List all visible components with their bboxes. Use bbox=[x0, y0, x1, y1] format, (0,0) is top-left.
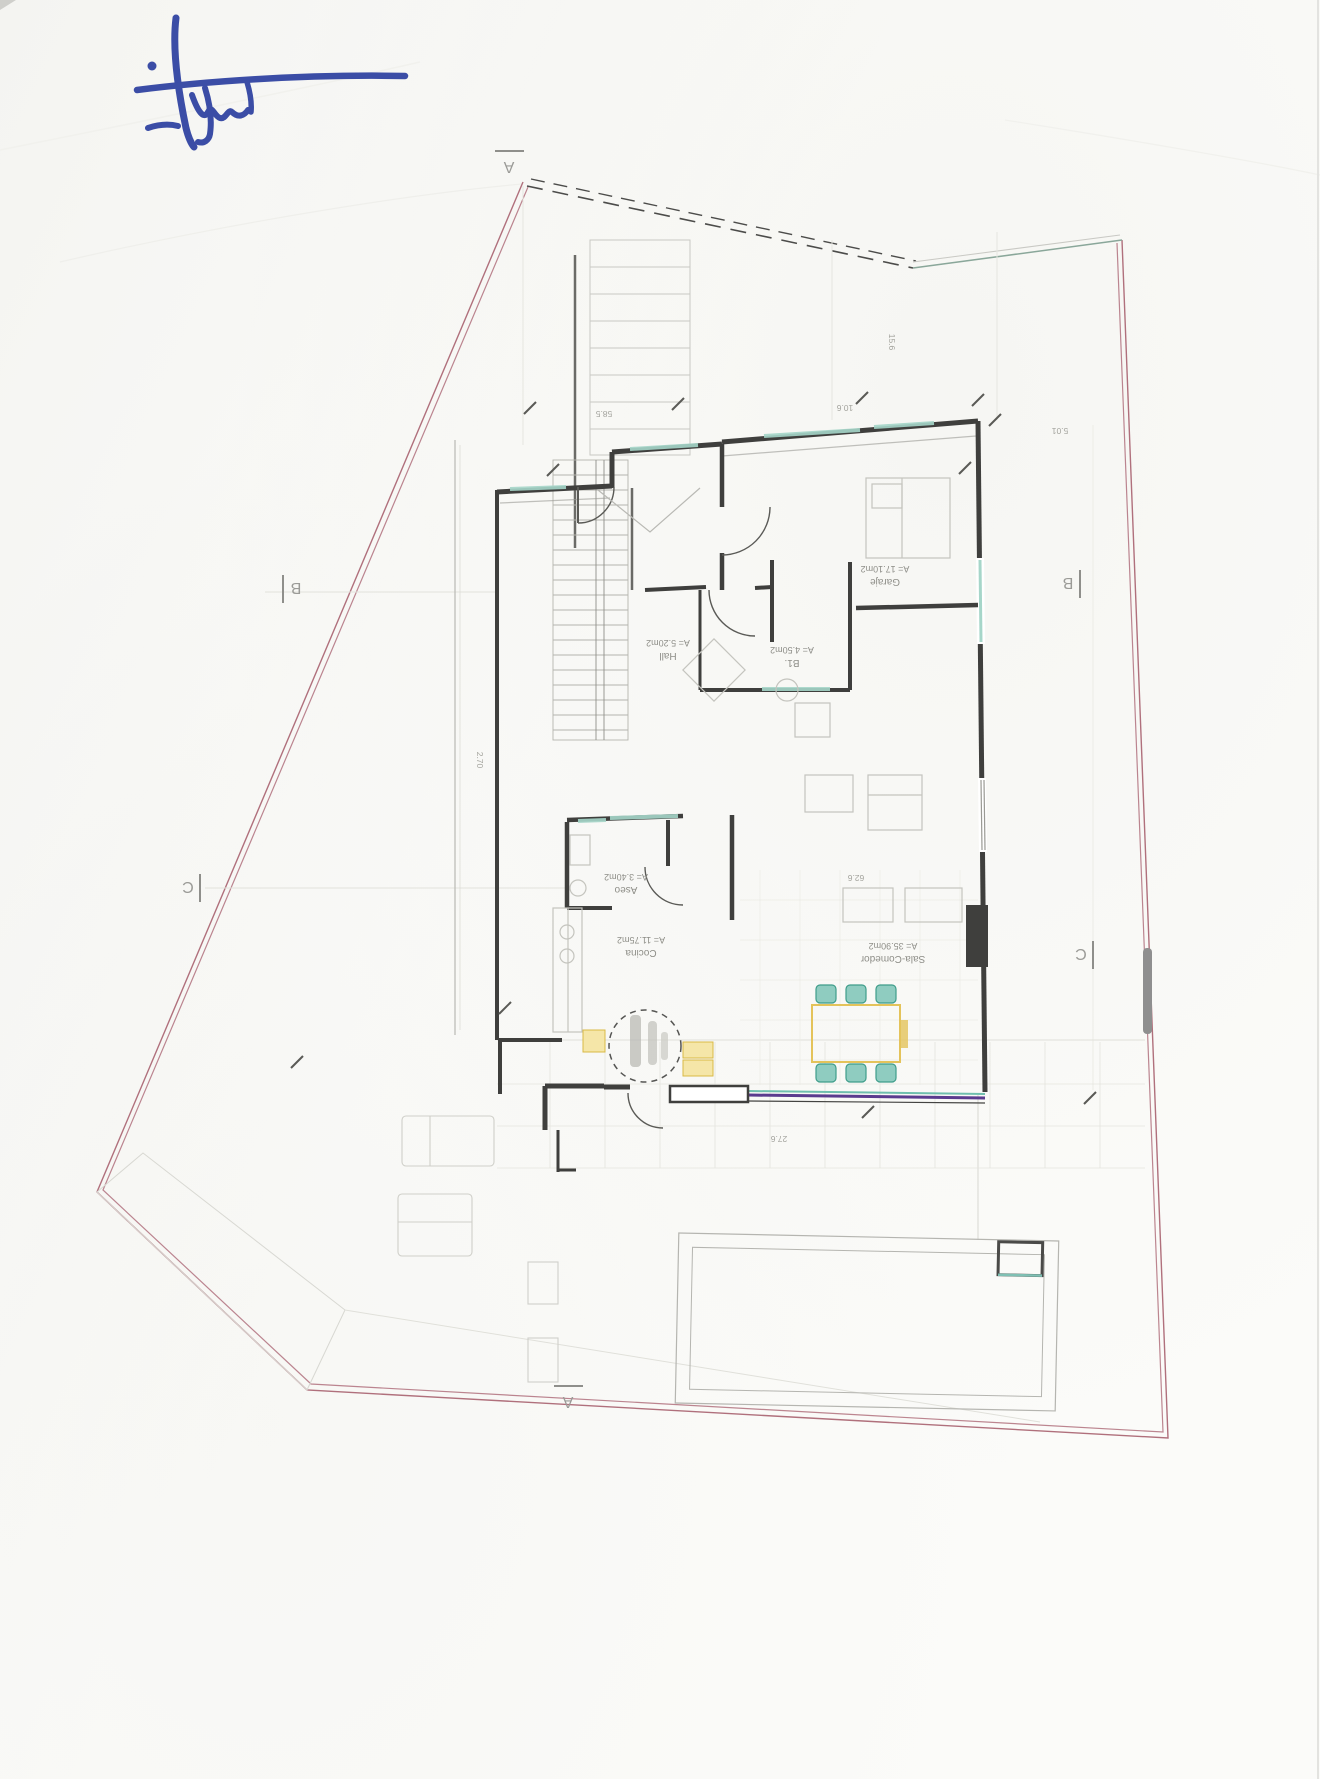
section-marker-c-right: C bbox=[1075, 941, 1093, 969]
svg-text:27.6: 27.6 bbox=[770, 1134, 787, 1144]
floor-plan-drawing: Garaje A= 17.10m2 Hall A= 5.20m2 B1. A= … bbox=[0, 0, 1320, 1779]
svg-text:B1.: B1. bbox=[784, 657, 799, 668]
svg-text:A= 17.10m2: A= 17.10m2 bbox=[861, 564, 910, 574]
section-marker-b-left: B bbox=[283, 575, 301, 603]
section-marker-c-left: C bbox=[182, 874, 200, 902]
svg-text:A= 4.50m2: A= 4.50m2 bbox=[770, 645, 814, 655]
svg-text:2.70: 2.70 bbox=[475, 752, 485, 769]
swimming-pool bbox=[675, 1233, 1058, 1411]
room-label-garaje: Garaje A= 17.10m2 bbox=[861, 564, 910, 587]
svg-text:A= 11.75m2: A= 11.75m2 bbox=[617, 935, 665, 945]
side-yard-fence bbox=[455, 440, 460, 1035]
handwritten-signature bbox=[137, 18, 405, 147]
svg-text:Aseo: Aseo bbox=[614, 884, 637, 895]
svg-text:Hall: Hall bbox=[659, 650, 676, 661]
scrollbar-thumb[interactable] bbox=[1143, 948, 1152, 1034]
svg-text:A= 3.40m2: A= 3.40m2 bbox=[604, 872, 648, 882]
svg-text:62.6: 62.6 bbox=[847, 873, 864, 883]
dining-table-set bbox=[812, 985, 908, 1082]
svg-text:A= 35.90m2: A= 35.90m2 bbox=[869, 941, 918, 951]
svg-text:15.6: 15.6 bbox=[887, 334, 897, 351]
svg-text:C: C bbox=[182, 878, 194, 895]
room-label-aseo: Aseo A= 3.40m2 bbox=[604, 872, 648, 895]
svg-text:Sala-Comedor: Sala-Comedor bbox=[860, 953, 925, 964]
door-swings bbox=[578, 487, 770, 1128]
room-label-sala-comedor: Sala-Comedor A= 35.90m2 bbox=[860, 941, 925, 964]
construction-lines bbox=[205, 186, 1145, 1240]
interior-floor-grid bbox=[740, 870, 978, 1085]
room-label-hall: Hall A= 5.20m2 bbox=[646, 638, 690, 661]
svg-text:10.6: 10.6 bbox=[836, 403, 853, 413]
terrace-tile-grid bbox=[497, 1042, 1145, 1168]
svg-text:58.5: 58.5 bbox=[595, 409, 612, 419]
svg-text:Garaje: Garaje bbox=[870, 576, 900, 587]
section-markers: A B B C C A bbox=[182, 151, 1093, 1410]
room-label-cocina: Cocina A= 11.75m2 bbox=[617, 935, 665, 958]
room-label-b1: B1. A= 4.50m2 bbox=[770, 645, 814, 668]
house-walls bbox=[497, 421, 988, 1172]
svg-text:A: A bbox=[503, 158, 514, 175]
svg-text:C: C bbox=[1075, 945, 1087, 962]
scanned-document-page: Garaje A= 17.10m2 Hall A= 5.20m2 B1. A= … bbox=[0, 0, 1320, 1779]
dimension-ticks bbox=[291, 392, 1096, 1118]
svg-text:A: A bbox=[562, 1393, 573, 1410]
section-marker-a-top: A bbox=[495, 151, 524, 175]
round-table-dashed bbox=[609, 1010, 681, 1082]
staircase bbox=[553, 460, 628, 740]
svg-text:B: B bbox=[291, 579, 302, 596]
svg-text:B: B bbox=[1063, 574, 1074, 591]
section-marker-b-right: B bbox=[1063, 570, 1080, 598]
svg-text:A= 5.20m2: A= 5.20m2 bbox=[646, 638, 690, 648]
svg-text:5.01: 5.01 bbox=[1051, 426, 1068, 436]
plot-boundary bbox=[97, 179, 1168, 1438]
svg-text:Cocina: Cocina bbox=[625, 947, 657, 958]
room-labels: Garaje A= 17.10m2 Hall A= 5.20m2 B1. A= … bbox=[604, 564, 925, 964]
sun-loungers bbox=[398, 1116, 558, 1382]
glazed-window-band bbox=[670, 1086, 985, 1103]
